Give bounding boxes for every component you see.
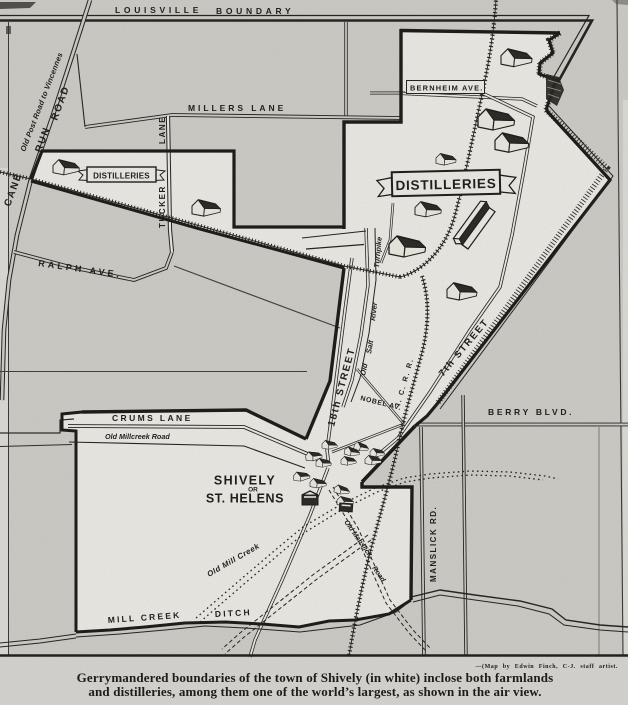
svg-text:—(Map by Edwin Finch, C-J. sta: —(Map by Edwin Finch, C-J. staff artist. xyxy=(474,663,618,670)
svg-text:and distilleries, among them o: and distilleries, among them one of the … xyxy=(88,684,541,699)
svg-text:Gerrymandered boundaries of th: Gerrymandered boundaries of the town of … xyxy=(77,670,554,685)
